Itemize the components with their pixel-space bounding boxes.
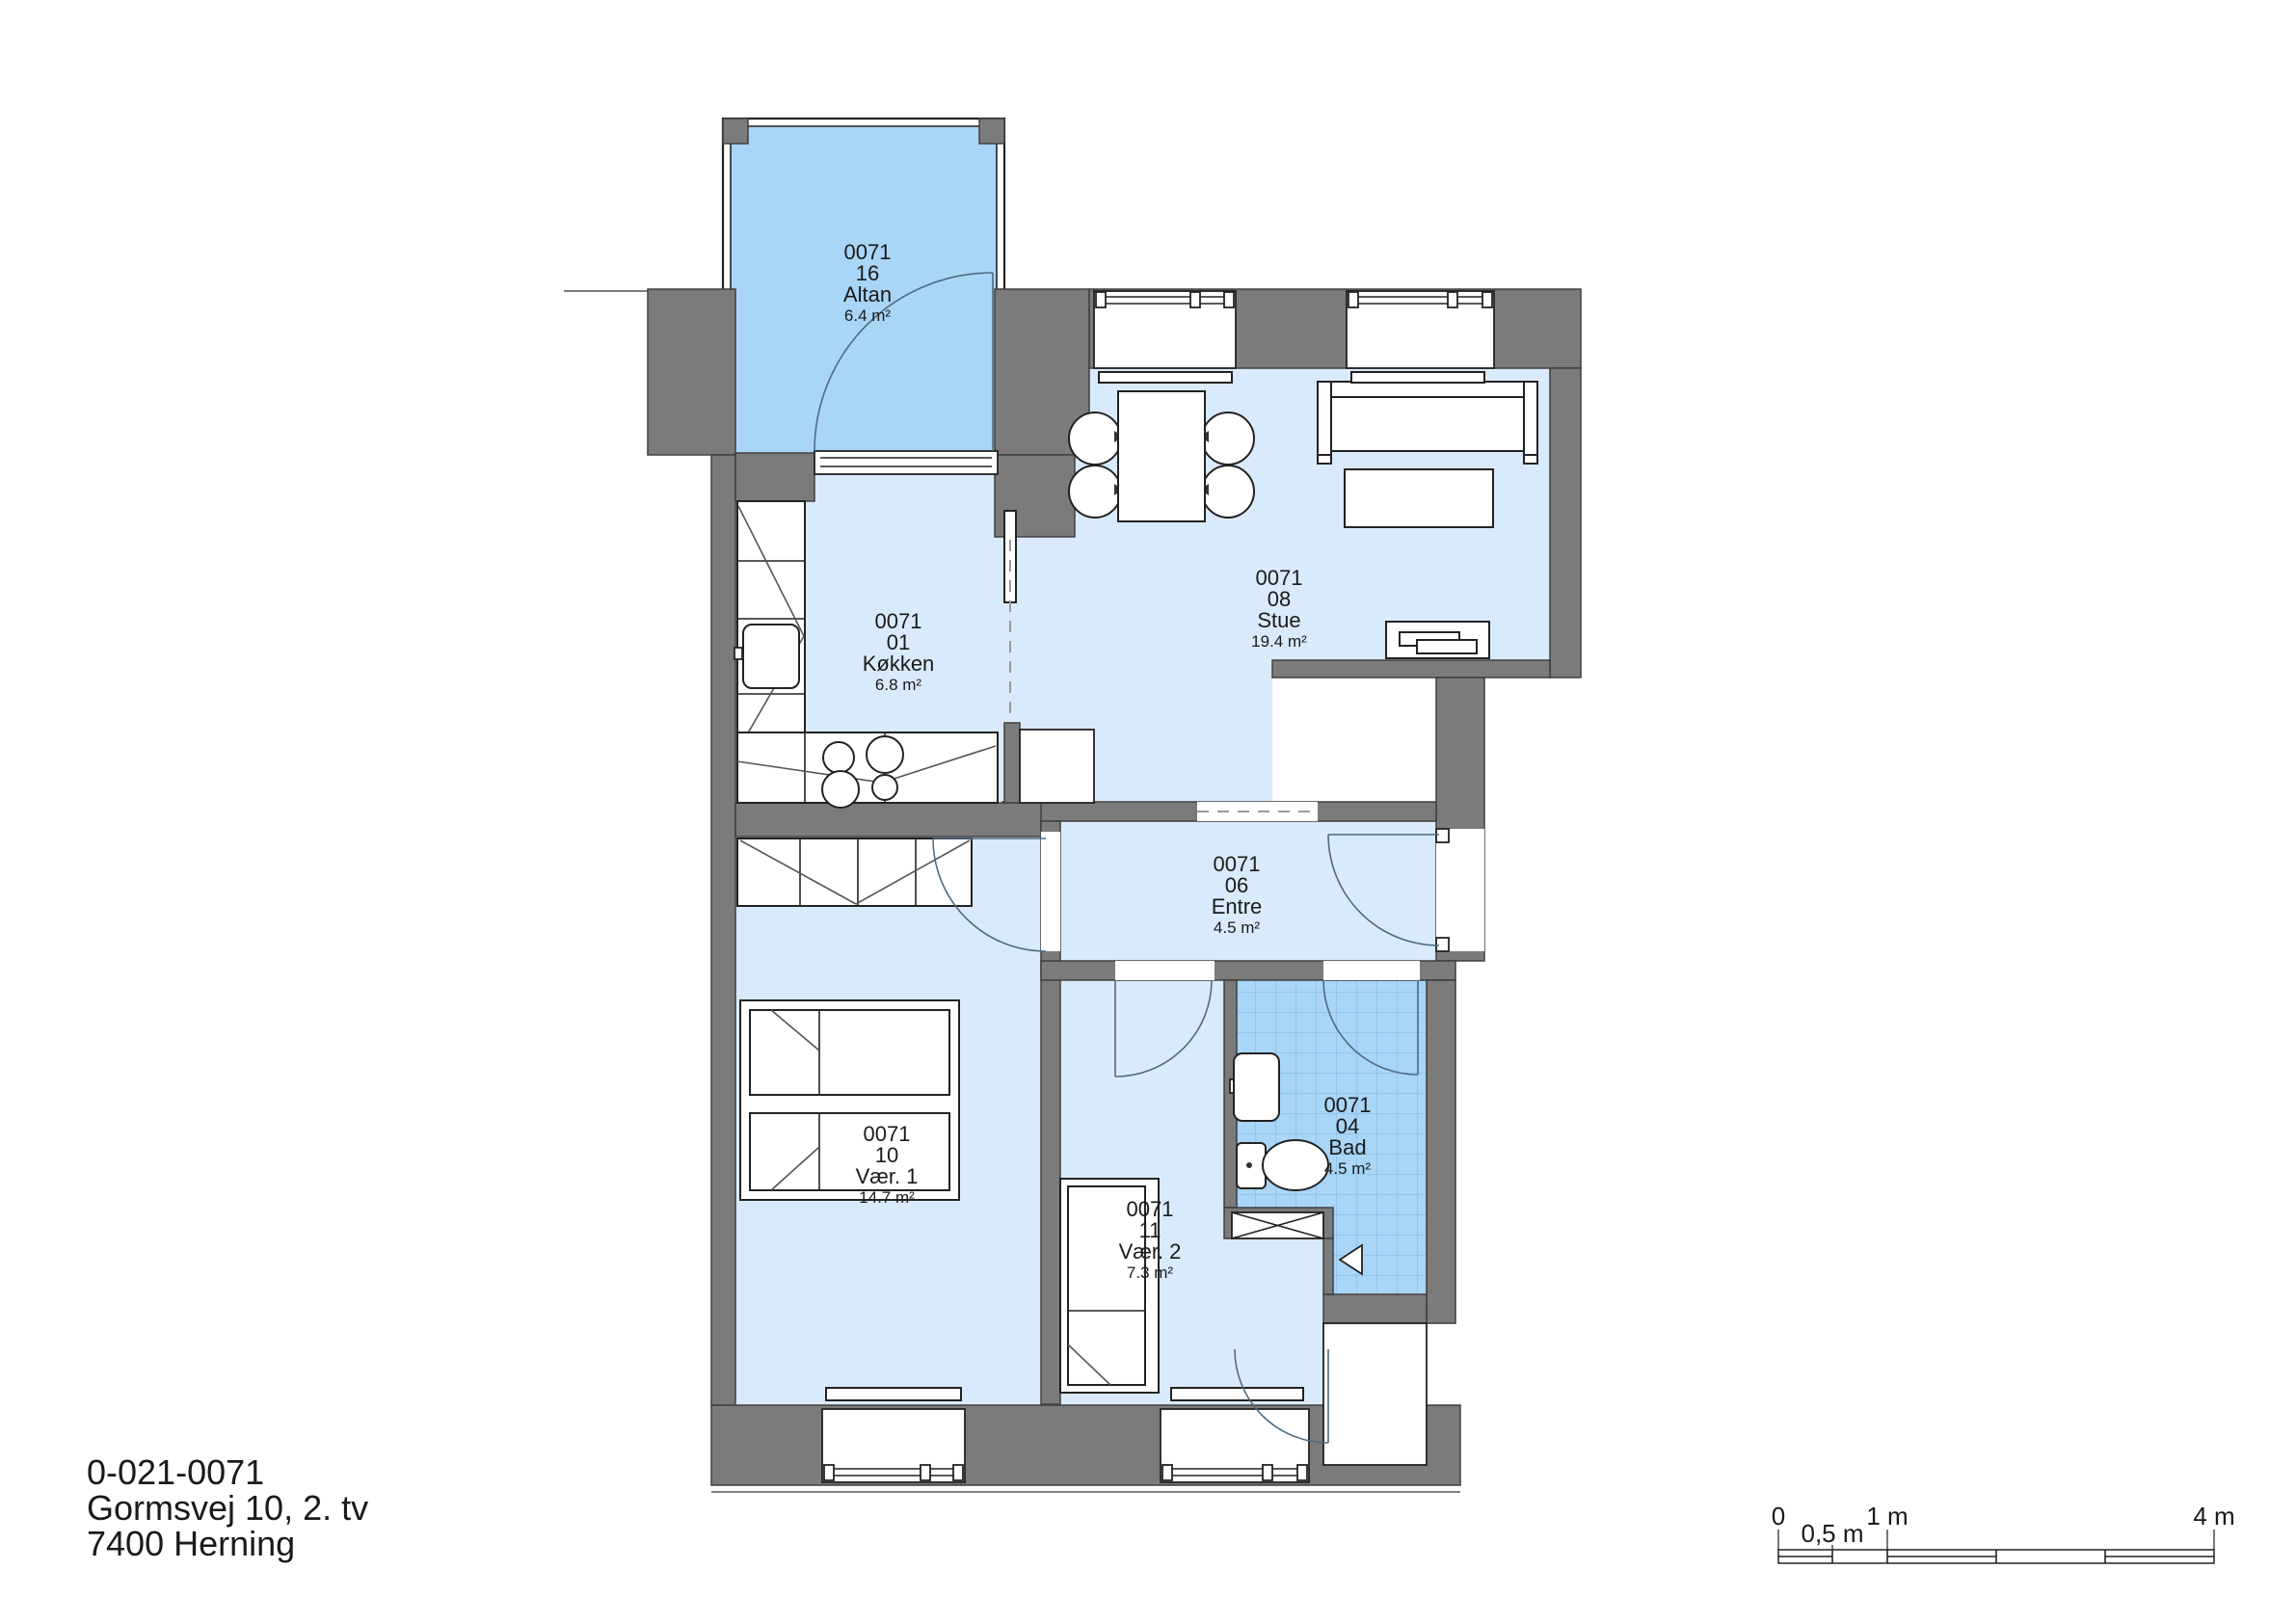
address-block: 0-021-0071 Gormsvej 10, 2. tv 7400 Herni… [87, 1452, 368, 1563]
svg-text:6.8 m²: 6.8 m² [875, 676, 922, 694]
scale-label-1: 1 m [1866, 1502, 1908, 1530]
scale-label-4: 4 m [2193, 1502, 2234, 1530]
room-label-altan: 0071 16 Altan 6.4 m² [843, 240, 892, 325]
radiator [1171, 1388, 1303, 1400]
toilet-symbol [1237, 1140, 1328, 1190]
bedroom1-door-opening [1041, 832, 1060, 951]
entrance-door-opening [1436, 829, 1484, 951]
bedroom2-door-opening [1115, 961, 1215, 980]
duct-shaft [1020, 730, 1094, 803]
shower-threshold [1232, 1212, 1323, 1238]
svg-text:Vær. 2: Vær. 2 [1119, 1239, 1182, 1264]
room-label-entre: 0071 06 Entre 4.5 m² [1212, 852, 1263, 937]
coffee-table-symbol [1345, 469, 1493, 527]
postal-city: 7400 Herning [87, 1524, 295, 1563]
wardrobe-symbol [737, 838, 972, 906]
street-address: Gormsvej 10, 2. tv [87, 1488, 368, 1528]
window-south-1 [822, 1409, 965, 1482]
svg-text:Køkken: Køkken [863, 652, 935, 676]
balcony-door-opening [814, 451, 998, 474]
svg-text:Altan: Altan [843, 282, 892, 306]
svg-text:19.4 m²: 19.4 m² [1251, 632, 1307, 651]
neighbour-room [1323, 1323, 1427, 1465]
window-south-2 [1161, 1409, 1309, 1482]
room-label-vaer1: 0071 10 Vær. 1 14.7 m² [856, 1122, 919, 1207]
balcony-post [979, 119, 1004, 144]
plan-id: 0-021-0071 [87, 1452, 264, 1492]
dining-table-symbol [1118, 391, 1205, 521]
svg-text:6.4 m²: 6.4 m² [844, 306, 892, 325]
bathroom-sink-symbol [1230, 1053, 1279, 1121]
radiator [1351, 372, 1484, 383]
svg-text:Entre: Entre [1212, 894, 1263, 918]
balcony-post [723, 119, 748, 144]
radiator [826, 1388, 961, 1400]
scale-label-0: 0 [1772, 1502, 1785, 1530]
sofa-symbol [1318, 382, 1537, 464]
room-label-bad: 0071 04 Bad 4.5 m² [1324, 1093, 1372, 1178]
scale-label-05: 0,5 m [1801, 1519, 1863, 1548]
scale-bar: 0 0,5 m 1 m 4 m [1772, 1502, 2235, 1563]
window-north-2 [1347, 291, 1494, 368]
window-north-1 [1094, 291, 1236, 368]
svg-text:Bad: Bad [1328, 1135, 1366, 1159]
floor-plan-drawing: 0071 16 Altan 6.4 m² 0071 01 Køkken 6.8 … [0, 0, 2296, 1623]
radiator [1099, 372, 1232, 383]
svg-text:14.7 m²: 14.7 m² [859, 1188, 915, 1207]
svg-text:4.5 m²: 4.5 m² [1214, 918, 1261, 937]
kitchen-sink-symbol [743, 625, 799, 688]
room-label-stue: 0071 08 Stue 19.4 m² [1251, 566, 1307, 651]
svg-text:7.3 m²: 7.3 m² [1127, 1264, 1174, 1282]
sideboard-radiator-symbol [1386, 622, 1489, 658]
bathroom-door-opening [1323, 961, 1420, 980]
svg-text:4.5 m²: 4.5 m² [1324, 1159, 1372, 1178]
room-label-vaer2: 0071 11 Vær. 2 7.3 m² [1119, 1197, 1182, 1282]
svg-text:Stue: Stue [1257, 608, 1300, 632]
double-bed-symbol [740, 1000, 959, 1200]
svg-text:Vær. 1: Vær. 1 [856, 1164, 919, 1188]
